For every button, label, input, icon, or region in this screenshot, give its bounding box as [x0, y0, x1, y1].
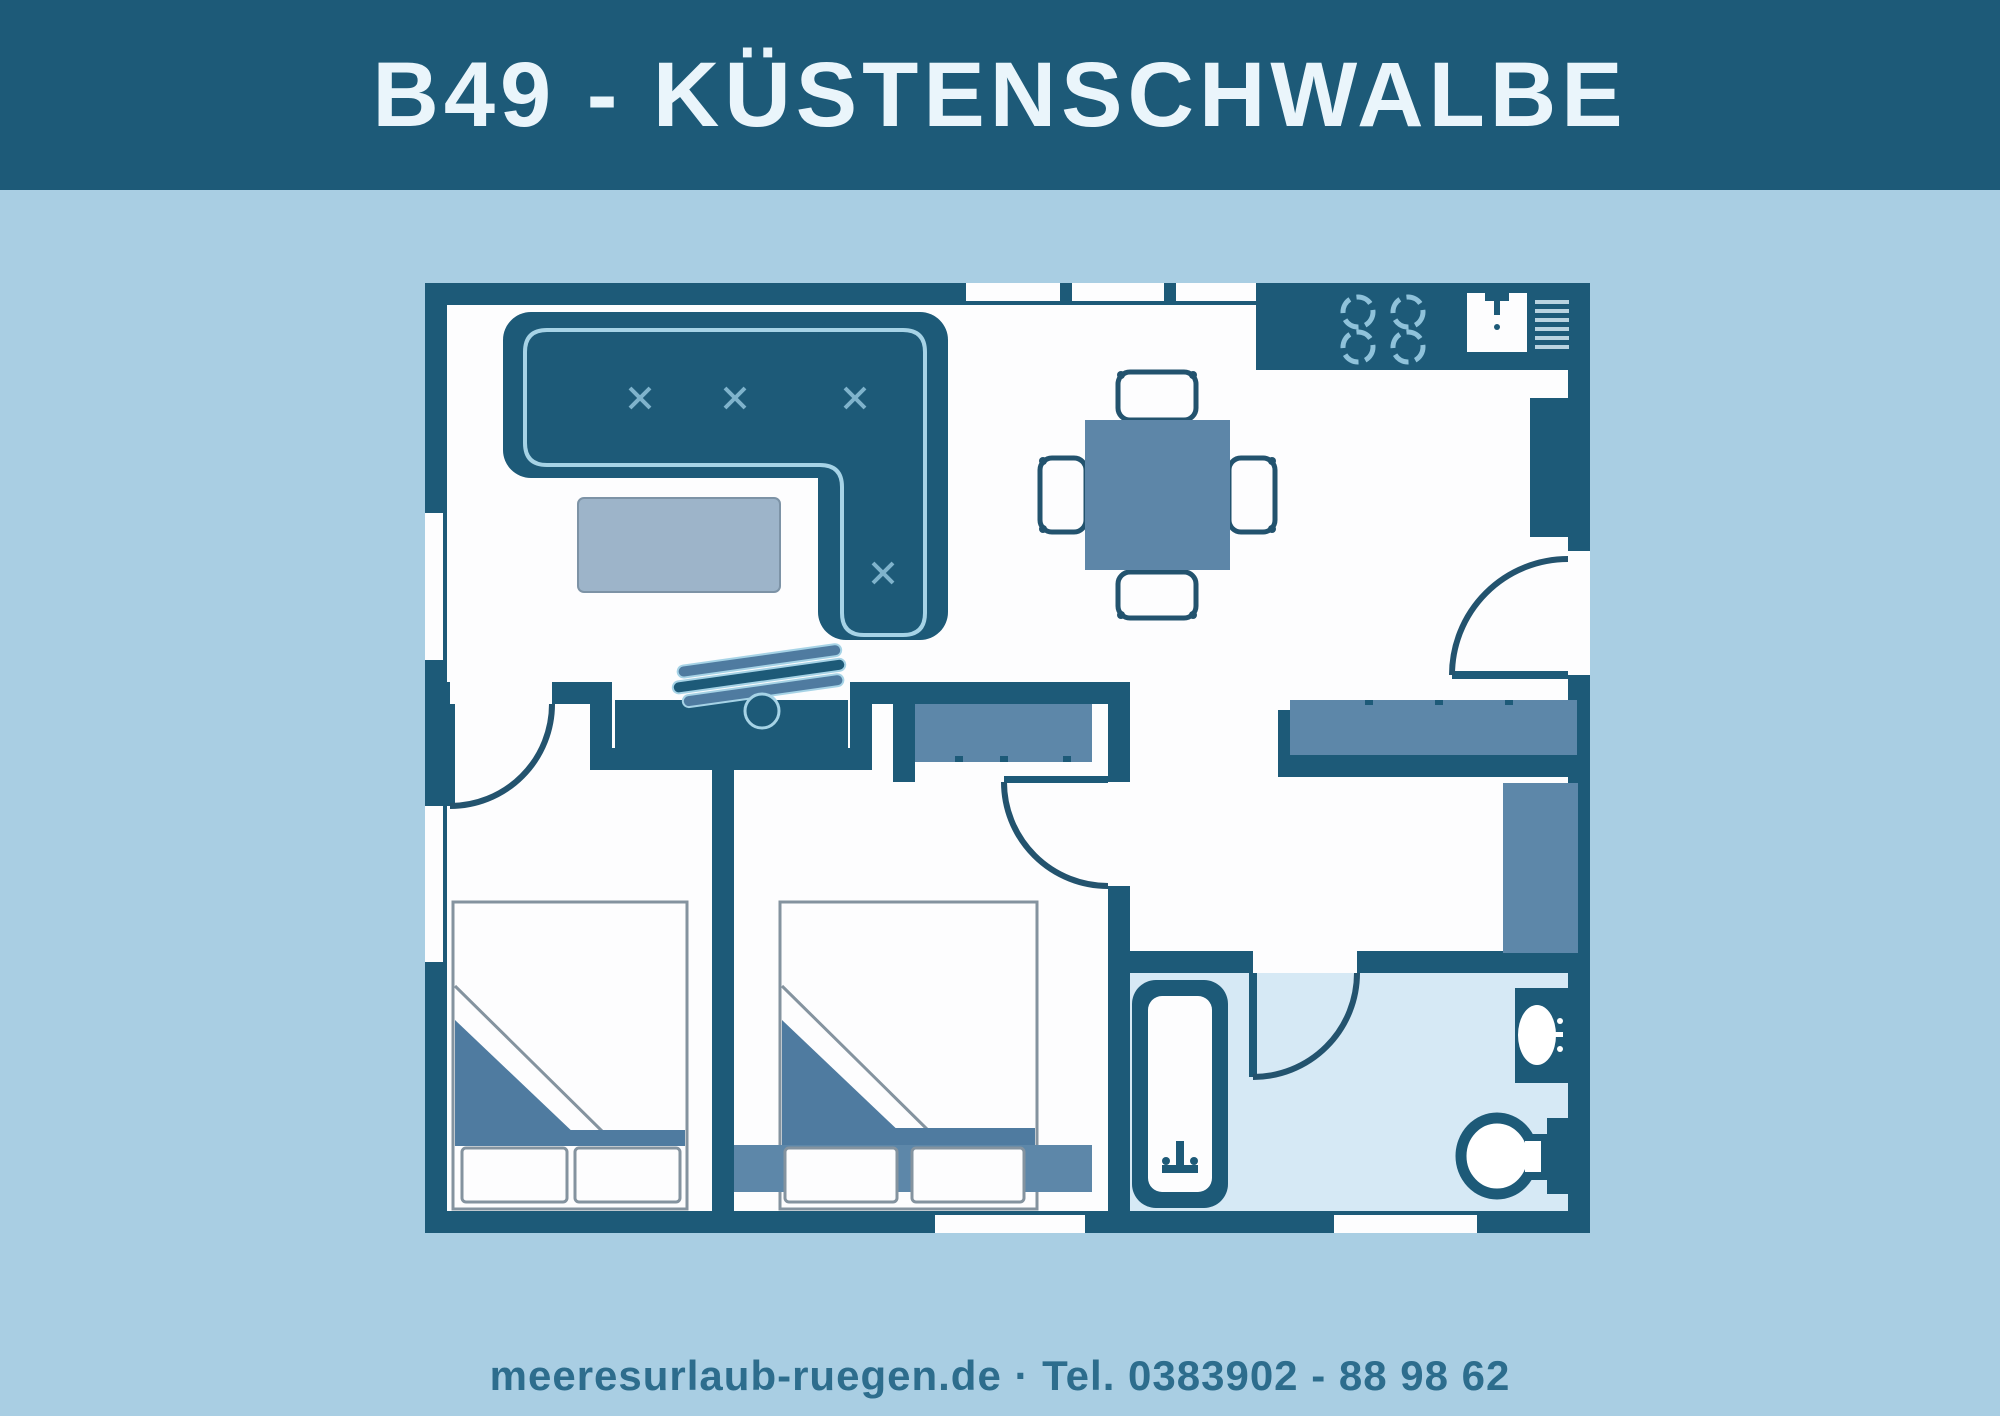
dresser-icon	[915, 704, 1092, 762]
dining-table-icon	[1085, 420, 1230, 570]
coffee-table-icon	[578, 498, 780, 592]
page-title: B49 - KÜSTENSCHWALBE	[372, 43, 1627, 148]
window-icon	[935, 1215, 1085, 1233]
toilet-icon	[1461, 1118, 1568, 1194]
title-banner: B49 - KÜSTENSCHWALBE	[0, 0, 2000, 190]
hall-cabinet-icon	[1503, 783, 1578, 953]
sideboard-icon	[1290, 700, 1577, 755]
kitchen-sink-icon	[1467, 293, 1527, 352]
washbasin-icon	[1515, 988, 1568, 1083]
double-bed-icon	[734, 902, 1092, 1209]
floor-plan-drawing	[425, 283, 1590, 1233]
entrance-opening	[1568, 551, 1590, 675]
pillow-icon	[462, 1148, 567, 1202]
pillow-icon	[575, 1148, 680, 1202]
footer: meeresurlaub-ruegen.de · Tel. 0383902 - …	[0, 1352, 2000, 1400]
dish-rack-icon	[1533, 296, 1571, 352]
window-icon	[425, 513, 443, 660]
bathtub-icon	[1132, 980, 1228, 1208]
double-bed-icon	[453, 902, 687, 1209]
window-icon	[425, 806, 443, 962]
pillow-icon	[785, 1148, 897, 1202]
window-icon	[1334, 1215, 1477, 1233]
tall-cabinet-icon	[1530, 398, 1578, 537]
floor-plan	[425, 283, 1590, 1233]
window-icon	[966, 283, 1256, 301]
pillow-icon	[912, 1148, 1024, 1202]
contact-info: meeresurlaub-ruegen.de · Tel. 0383902 - …	[490, 1352, 1511, 1399]
